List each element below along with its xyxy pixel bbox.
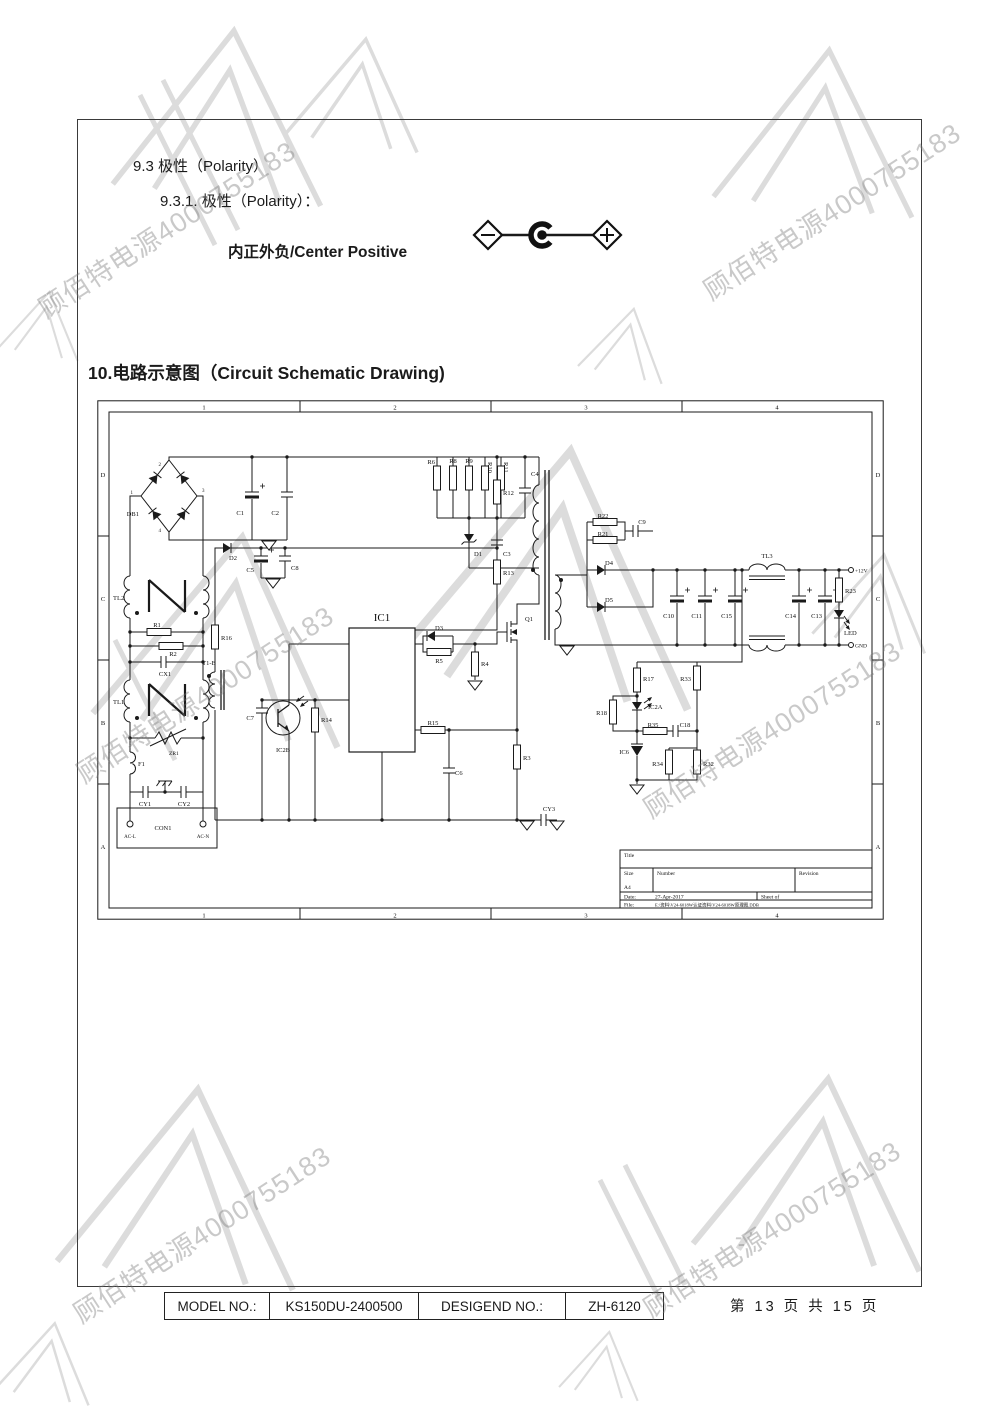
bridge-pin: 2 [159, 463, 162, 468]
label-R3: R3 [523, 755, 531, 762]
label-IC2A: IC2A [648, 704, 663, 711]
label-CX1: CX1 [159, 671, 171, 678]
row-label: A [876, 844, 881, 851]
label-R13: R13 [503, 570, 514, 577]
tb-size-value: A4 [624, 885, 631, 891]
label-CY3: CY3 [543, 806, 555, 813]
label-IC6: IC6 [619, 749, 630, 756]
circuit-schematic: 1 2 3 4 1 2 3 4 D C B A D C B A [97, 400, 884, 920]
label-C6: C6 [455, 770, 463, 777]
label-R4: R4 [481, 661, 489, 668]
label-R18: R18 [596, 710, 607, 717]
tb-number-label: Number [657, 871, 675, 877]
label-C13: C13 [811, 613, 822, 620]
label-C4: C4 [531, 471, 539, 478]
tb-date-label: Date: [624, 895, 636, 901]
label-R22: R22 [598, 513, 609, 520]
schematic-wires [117, 457, 854, 848]
tb-file-value: E:\资料\V24-6018W认证资料\V24-6018W原理图.DDB [655, 902, 759, 909]
label-F1: F1 [138, 761, 145, 768]
bridge-pin: 4 [159, 529, 162, 534]
label-R34: R34 [652, 761, 664, 768]
model-no-value: KS150DU-2400500 [269, 1293, 418, 1319]
label-R8: R8 [449, 458, 457, 465]
label-R6: R6 [427, 459, 435, 466]
label-R21: R21 [598, 531, 609, 538]
design-no-label: DESIGEND NO.: [418, 1293, 565, 1319]
label-DB1: DB1 [127, 511, 139, 518]
label-C2: C2 [271, 510, 279, 517]
bridge-pin: 1 [131, 491, 134, 496]
bridge-pin: 3 [202, 489, 205, 494]
col-label: 2 [393, 913, 396, 920]
label-R11: R11 [502, 462, 509, 473]
label-C1: C1 [236, 510, 244, 517]
label-CY2: CY2 [178, 801, 190, 808]
label-CY1: CY1 [139, 801, 151, 808]
label-R9: R9 [465, 458, 473, 465]
label-IC1: IC1 [374, 612, 391, 624]
label-C18: C18 [680, 722, 691, 729]
section-9-3-heading: 9.3 极性（Polarity） [133, 155, 268, 176]
label-C10: C10 [663, 613, 674, 620]
col-label: 1 [202, 913, 205, 920]
label-gnd: GND [855, 644, 867, 650]
row-label: C [876, 596, 880, 603]
col-label: 4 [775, 913, 779, 920]
label-R12: R12 [503, 490, 514, 497]
row-label: B [101, 720, 106, 727]
label-Q1: Q1 [525, 616, 533, 623]
label-R17: R17 [643, 676, 655, 683]
section-9-3-1-heading: 9.3.1. 极性（Polarity）： [160, 190, 319, 211]
row-label: B [876, 720, 881, 727]
label-TL2: TL2 [113, 595, 124, 602]
schematic-labels: DB1 1 2 3 4 C1 C2 R6 R8 R9 R10 R11 C4 D1… [113, 458, 868, 840]
document-page: 顾佰特电源4000755183 顾佰特电源4000755183 顾佰特电源400… [0, 0, 1000, 1414]
label-CON1: CON1 [155, 825, 172, 832]
label-C11: C11 [691, 613, 702, 620]
label-ACL: AC-L [124, 835, 136, 840]
label-R15: R15 [428, 720, 439, 727]
label-R35: R35 [648, 722, 659, 729]
label-D2: D2 [229, 555, 237, 562]
polarity-text: 内正外负/Center Positive [228, 240, 407, 262]
label-R5: R5 [435, 658, 443, 665]
section-10-heading: 10.电路示意图（Circuit Schematic Drawing) [88, 360, 445, 385]
label-D5: D5 [605, 597, 613, 604]
tb-title-label: Title [624, 853, 635, 859]
tb-sheet-label: Sheet of [761, 894, 779, 901]
label-C5: C5 [246, 567, 254, 574]
center-positive-polarity-icon [470, 213, 625, 258]
label-TL3: TL3 [761, 553, 772, 560]
row-label: D [101, 472, 106, 479]
label-C7: C7 [246, 715, 254, 722]
label-R32: R32 [703, 761, 714, 768]
label-C8: C8 [291, 565, 299, 572]
label-plus12v: +12V [855, 569, 868, 575]
label-ZR1: ZR1 [169, 751, 179, 757]
row-label: D [876, 472, 881, 479]
tb-file-label: File: [624, 903, 635, 909]
col-label: 3 [584, 405, 587, 412]
label-C9: C9 [638, 519, 646, 526]
label-D1: D1 [474, 551, 482, 558]
page-number: 第 13 页 共 15 页 [730, 1295, 879, 1316]
label-T1B: T1-B [202, 660, 216, 667]
label-R10: R10 [486, 462, 493, 473]
label-C3: C3 [503, 551, 511, 558]
label-R2: R2 [169, 651, 177, 658]
row-label: A [101, 844, 106, 851]
label-IC2B: IC2B [276, 747, 291, 754]
col-label: 1 [202, 405, 205, 412]
label-ACN: AC-N [197, 835, 210, 840]
tb-revision-label: Revision [799, 871, 819, 877]
label-LED: LED [844, 630, 857, 637]
label-R23: R23 [845, 588, 856, 595]
label-R1: R1 [153, 622, 161, 629]
col-label: 4 [775, 405, 779, 412]
label-R16: R16 [221, 635, 233, 642]
title-block: Title Size A4 Number Revision Date: 27-A… [620, 850, 872, 909]
label-D3: D3 [435, 625, 443, 632]
tb-date-value: 27-Apr-2017 [655, 895, 684, 901]
label-R33: R33 [680, 676, 691, 683]
tb-size-label: Size [624, 871, 634, 877]
label-D4: D4 [605, 560, 614, 567]
row-label: C [101, 596, 105, 603]
label-C15: C15 [721, 613, 732, 620]
design-no-value: ZH-6120 [565, 1293, 663, 1319]
col-label: 3 [584, 913, 587, 920]
label-R14: R14 [321, 717, 333, 724]
col-label: 2 [393, 405, 396, 412]
label-C14: C14 [785, 613, 797, 620]
label-TL1: TL1 [113, 699, 124, 706]
model-no-label: MODEL NO.: [165, 1293, 269, 1319]
footer-table: MODEL NO.: KS150DU-2400500 DESIGEND NO.:… [164, 1292, 664, 1320]
